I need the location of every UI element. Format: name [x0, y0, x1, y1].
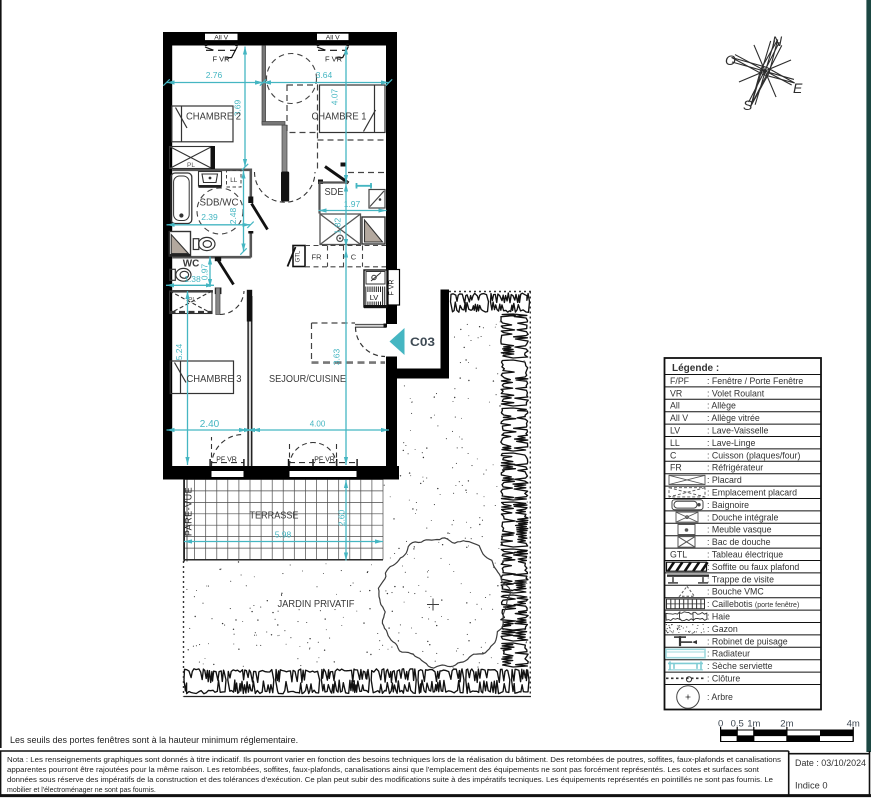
- svg-text:: Soffite ou faux plafond: : Soffite ou faux plafond: [707, 562, 799, 572]
- svg-text:LV: LV: [670, 426, 680, 436]
- svg-text:: Trappe de visite: : Trappe de visite: [707, 574, 774, 584]
- svg-text:: Meuble vasque: : Meuble vasque: [707, 525, 772, 535]
- svg-text:N: N: [772, 33, 783, 49]
- svg-text:All: All: [670, 401, 680, 411]
- svg-text:Légende :: Légende :: [672, 363, 719, 374]
- svg-text:: Arbre: : Arbre: [707, 692, 733, 702]
- svg-text:JARDIN PRIVATIF: JARDIN PRIVATIF: [278, 599, 355, 610]
- svg-text:S: S: [743, 97, 753, 113]
- svg-text:3.63: 3.63: [332, 348, 342, 365]
- svg-text:GTL: GTL: [296, 250, 302, 262]
- svg-text:FR: FR: [670, 463, 682, 473]
- svg-text:TERRASSE: TERRASSE: [250, 511, 299, 522]
- svg-text:: Robinet de puisage: : Robinet de puisage: [707, 636, 788, 646]
- svg-text:1m: 1m: [747, 719, 760, 730]
- svg-text:All V: All V: [670, 413, 688, 423]
- svg-text:SDB/WC: SDB/WC: [200, 198, 239, 209]
- svg-text:apparentes pourront être rajou: apparentes pourront être rajoutées pour …: [7, 767, 759, 774]
- svg-text:: Lave-Vaisselle: : Lave-Vaisselle: [707, 426, 769, 436]
- svg-text:SEJOUR/CUISINE: SEJOUR/CUISINE: [269, 374, 346, 385]
- svg-text:C: C: [351, 253, 357, 262]
- svg-text:mobilier et l'électroménager n: mobilier et l'électroménager ne sont pas…: [7, 787, 156, 794]
- svg-text:4.00: 4.00: [310, 420, 326, 429]
- svg-text:Indice 0: Indice 0: [795, 781, 828, 791]
- svg-text:PF VR: PF VR: [314, 457, 335, 464]
- svg-text:4m: 4m: [847, 719, 860, 730]
- svg-text:: Volet Roulant: : Volet Roulant: [707, 388, 765, 398]
- svg-text:2.60: 2.60: [337, 509, 347, 526]
- svg-text:C: C: [670, 450, 677, 460]
- svg-text:Les seuils des portes fenêtres: Les seuils des portes fenêtres sont à la…: [10, 735, 298, 745]
- svg-text:PL: PL: [187, 162, 195, 169]
- svg-text:: Allège vitrée: : Allège vitrée: [707, 413, 760, 423]
- svg-text:CHAMBRE 3: CHAMBRE 3: [187, 374, 242, 385]
- svg-text:5.98: 5.98: [275, 530, 292, 540]
- svg-text:LL: LL: [230, 177, 238, 184]
- svg-text:CHAMBRE 1: CHAMBRE 1: [312, 112, 367, 123]
- svg-text:PARE-VUE: PARE-VUE: [184, 487, 194, 536]
- svg-text:: Clôture: : Clôture: [707, 674, 740, 684]
- svg-text:Date : 03/10/2024: Date : 03/10/2024: [795, 758, 866, 768]
- svg-text:WC: WC: [183, 259, 200, 270]
- svg-text:: Tableau électrique: : Tableau électrique: [707, 550, 783, 560]
- svg-text:: Cuisson (plaques/four): : Cuisson (plaques/four): [707, 450, 800, 460]
- svg-text:données sous réserve des impér: données sous réserve des impératifs de l…: [7, 777, 773, 784]
- svg-text:FR: FR: [312, 253, 323, 262]
- svg-text:: Allège: : Allège: [707, 401, 736, 411]
- svg-text:SDE: SDE: [325, 187, 344, 198]
- svg-text:PL: PL: [188, 297, 196, 304]
- svg-text:E: E: [793, 80, 803, 96]
- svg-text:PF VR: PF VR: [216, 457, 237, 464]
- svg-text:All V: All V: [326, 35, 340, 42]
- svg-text:F VR: F VR: [325, 55, 343, 64]
- svg-text:F VR: F VR: [212, 55, 230, 64]
- svg-text:: Baignoire: : Baignoire: [707, 500, 749, 510]
- svg-text:C03: C03: [410, 335, 435, 349]
- svg-text:0.5: 0.5: [731, 719, 744, 730]
- svg-text:Nota : Les renseignements grap: Nota : Les renseignements graphiques son…: [7, 757, 782, 764]
- svg-text:: Gazon: : Gazon: [707, 624, 738, 634]
- svg-text:: Bac de douche: : Bac de douche: [707, 537, 771, 547]
- svg-text:3.64: 3.64: [316, 70, 333, 80]
- svg-text:LL: LL: [670, 438, 680, 448]
- svg-text:VR: VR: [670, 388, 682, 398]
- svg-text:: Lave-Linge: : Lave-Linge: [707, 438, 756, 448]
- svg-text:: Bouche VMC: : Bouche VMC: [707, 587, 764, 597]
- svg-text:5.24: 5.24: [174, 343, 184, 360]
- svg-text:: Emplacement placard: : Emplacement placard: [707, 488, 797, 498]
- svg-text:1.38: 1.38: [184, 274, 201, 284]
- svg-text:GTL: GTL: [670, 550, 687, 560]
- svg-text:: Placard: : Placard: [707, 475, 742, 485]
- svg-text:: Radiateur: : Radiateur: [707, 649, 750, 659]
- svg-text:2.39: 2.39: [201, 212, 218, 222]
- svg-text:: Réfrigérateur: : Réfrigérateur: [707, 463, 763, 473]
- svg-text:4.07: 4.07: [330, 88, 340, 105]
- svg-text:CHAMBRE 2: CHAMBRE 2: [186, 112, 241, 123]
- svg-text:: Douche intégrale: : Douche intégrale: [707, 512, 779, 522]
- svg-text:: Fenêtre / Porte Fenêtre: : Fenêtre / Porte Fenêtre: [707, 376, 803, 386]
- svg-text:2m: 2m: [780, 719, 793, 730]
- svg-text:LV: LV: [370, 293, 379, 302]
- svg-text:F/PF: F/PF: [670, 376, 690, 386]
- svg-text:0: 0: [718, 719, 723, 730]
- svg-text:1.82: 1.82: [333, 217, 343, 234]
- svg-text:2.76: 2.76: [206, 70, 223, 80]
- svg-text:: Haie: : Haie: [707, 612, 730, 622]
- svg-text:2.48: 2.48: [228, 207, 238, 224]
- svg-text:2.40: 2.40: [200, 419, 220, 430]
- svg-text:: Sèche serviette: : Sèche serviette: [707, 661, 773, 671]
- svg-text:All V: All V: [214, 35, 228, 42]
- svg-text:0.97: 0.97: [200, 263, 210, 280]
- svg-text:O: O: [725, 52, 736, 68]
- svg-text:F VR: F VR: [389, 280, 396, 296]
